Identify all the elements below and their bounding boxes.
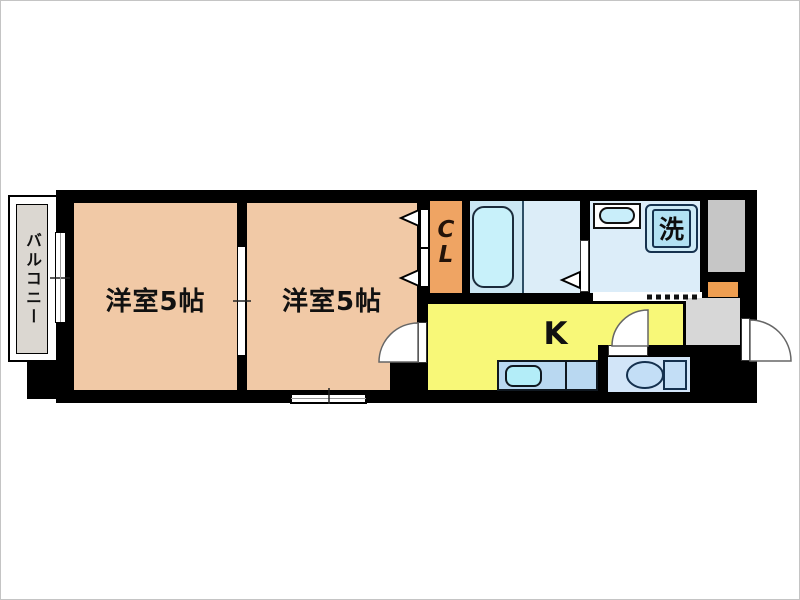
balcony-label: バルコニー xyxy=(17,205,47,353)
balcony-corner-wall xyxy=(27,361,60,399)
washing-machine-label: 洗 xyxy=(659,215,684,244)
entrance-hall xyxy=(686,298,740,345)
closet-door-panel-bottom xyxy=(421,249,428,286)
room-1-label: 洋室5帖 xyxy=(74,281,237,318)
balcony-window xyxy=(55,232,66,323)
room-2-window xyxy=(290,393,367,404)
washing-machine: 洗 xyxy=(652,209,691,248)
floor-plan: バルコニー 洋室5帖 洋室5帖 C L 洗 K xyxy=(0,0,800,600)
vanity-sink xyxy=(593,203,641,229)
closet-door-panel-top xyxy=(421,210,428,247)
room-2-door-panel xyxy=(418,322,427,363)
kitchen-sink xyxy=(505,365,542,387)
balcony-floor: バルコニー xyxy=(16,204,48,354)
toilet-room xyxy=(608,357,690,392)
kitchen-counter xyxy=(497,360,598,391)
washing-machine-pan: 洗 xyxy=(645,204,698,253)
service-shaft xyxy=(708,200,745,272)
bathroom xyxy=(470,201,580,293)
meter-box xyxy=(708,282,738,297)
bathroom-drying-floor xyxy=(522,201,580,293)
bathroom-door-panel xyxy=(580,240,589,292)
vanity-basin xyxy=(599,207,635,224)
closet: C L xyxy=(430,201,462,293)
closet-label-c: C xyxy=(430,218,462,243)
toilet-door-panel xyxy=(608,345,648,356)
closet-label-l: L xyxy=(430,243,462,268)
entrance-door-panel xyxy=(741,318,750,361)
room-divider-sliding-door xyxy=(237,246,246,356)
bathtub xyxy=(472,206,514,288)
kitchen-counter-divider xyxy=(565,362,567,389)
room-2-label: 洋室5帖 xyxy=(247,281,417,318)
room-2-corner-wall xyxy=(390,362,428,391)
